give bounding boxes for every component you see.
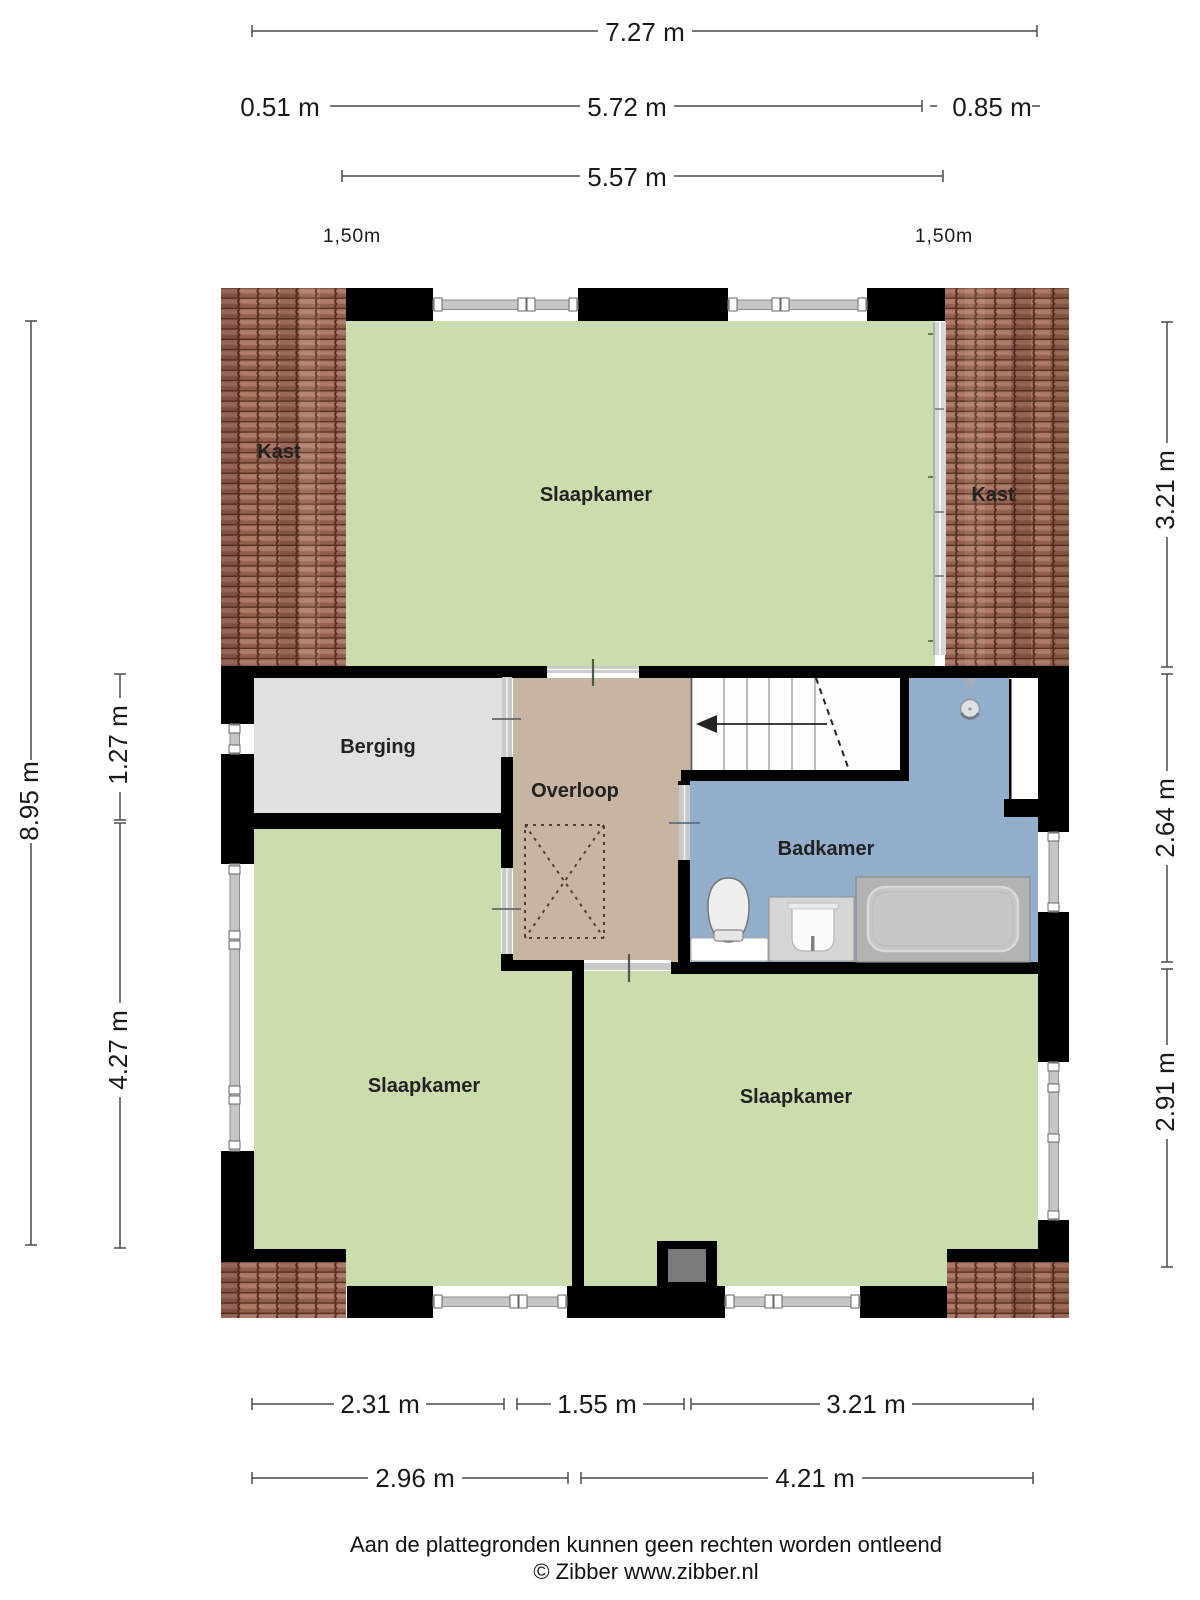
svg-text:5.57 m: 5.57 m — [587, 162, 667, 192]
svg-text:1,50m: 1,50m — [915, 225, 973, 247]
svg-text:Aan de plattegronden kunnen ge: Aan de plattegronden kunnen geen rechten… — [350, 1532, 942, 1557]
svg-text:Badkamer: Badkamer — [778, 838, 875, 860]
svg-text:4.27 m: 4.27 m — [103, 1010, 133, 1090]
svg-text:2.64 m: 2.64 m — [1150, 778, 1180, 858]
svg-text:5.72 m: 5.72 m — [587, 92, 667, 122]
svg-text:© Zibber www.zibber.nl: © Zibber www.zibber.nl — [533, 1559, 758, 1584]
svg-text:2.91 m: 2.91 m — [1150, 1052, 1180, 1132]
svg-text:Slaapkamer: Slaapkamer — [540, 484, 653, 506]
svg-text:0.85 m: 0.85 m — [952, 92, 1032, 122]
svg-text:Slaapkamer: Slaapkamer — [740, 1086, 853, 1108]
svg-text:1.55 m: 1.55 m — [557, 1389, 637, 1419]
svg-text:Overloop: Overloop — [531, 780, 619, 802]
svg-text:3.21 m: 3.21 m — [826, 1389, 906, 1419]
svg-text:1,50m: 1,50m — [323, 225, 381, 247]
svg-text:Kast: Kast — [257, 441, 301, 463]
svg-text:4.21 m: 4.21 m — [775, 1463, 855, 1493]
svg-text:2.96 m: 2.96 m — [375, 1463, 455, 1493]
svg-text:2.31 m: 2.31 m — [340, 1389, 420, 1419]
svg-text:8.95 m: 8.95 m — [14, 761, 44, 841]
svg-text:Kast: Kast — [971, 484, 1015, 506]
svg-text:Berging: Berging — [340, 736, 416, 758]
svg-text:Slaapkamer: Slaapkamer — [368, 1075, 481, 1097]
svg-text:1.27 m: 1.27 m — [103, 705, 133, 785]
svg-text:7.27 m: 7.27 m — [605, 17, 685, 47]
svg-text:0.51 m: 0.51 m — [240, 92, 320, 122]
svg-text:3.21 m: 3.21 m — [1150, 450, 1180, 530]
